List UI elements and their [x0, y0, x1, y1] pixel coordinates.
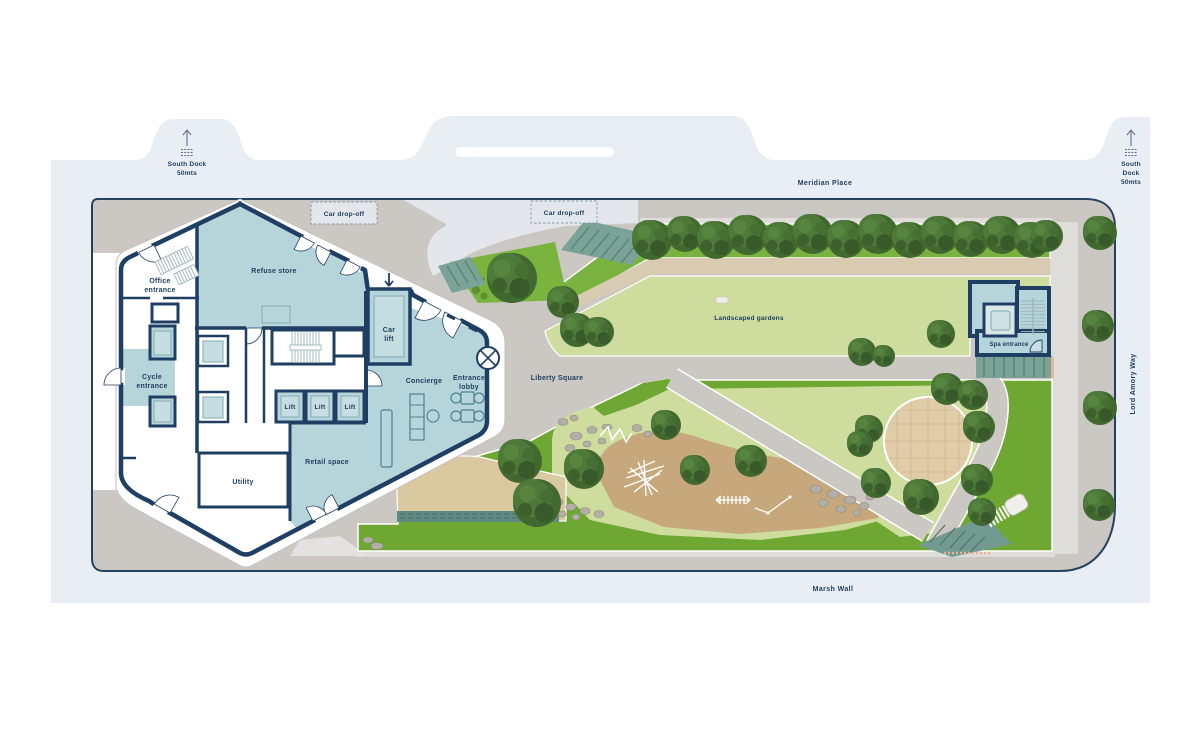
svg-text:50mts: 50mts: [1121, 179, 1141, 186]
svg-text:Lift: Lift: [314, 404, 326, 411]
svg-text:entrance: entrance: [144, 287, 175, 294]
svg-text:Cycle: Cycle: [142, 374, 162, 381]
svg-text:Office: Office: [149, 278, 170, 285]
svg-text:Entrance: Entrance: [453, 375, 485, 382]
svg-text:Meridian Place: Meridian Place: [798, 180, 853, 187]
svg-text:lobby: lobby: [459, 384, 479, 391]
svg-text:Spa entrance: Spa entrance: [990, 342, 1029, 348]
svg-text:Car drop-off: Car drop-off: [324, 211, 365, 218]
svg-text:Landscaped gardens: Landscaped gardens: [714, 315, 784, 322]
svg-text:Dock: Dock: [1123, 170, 1140, 177]
svg-text:Car: Car: [383, 327, 395, 334]
svg-text:Lord Amory Way: Lord Amory Way: [1130, 353, 1137, 414]
svg-text:50mts: 50mts: [177, 170, 197, 177]
svg-text:Concierge: Concierge: [406, 378, 442, 385]
svg-text:Lift: Lift: [284, 404, 296, 411]
svg-text:Lift: Lift: [344, 404, 356, 411]
svg-text:Refuse store: Refuse store: [251, 268, 296, 275]
svg-text:South Dock: South Dock: [168, 161, 207, 168]
svg-text:South: South: [1121, 161, 1141, 168]
svg-text:Car drop-off: Car drop-off: [544, 210, 585, 217]
svg-text:Marsh Wall: Marsh Wall: [813, 586, 854, 593]
svg-text:entrance: entrance: [136, 383, 167, 390]
svg-text:lift: lift: [384, 336, 394, 343]
svg-text:Liberty Square: Liberty Square: [531, 375, 584, 382]
svg-text:Utility: Utility: [232, 479, 253, 486]
svg-text:Retail space: Retail space: [305, 459, 349, 466]
